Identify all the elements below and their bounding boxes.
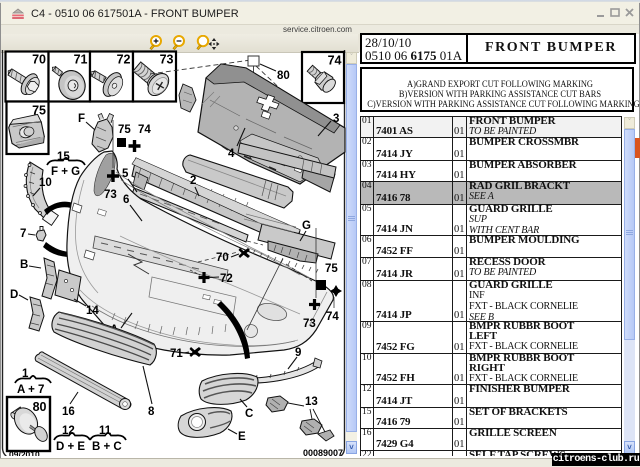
svg-text:16: 16: [62, 406, 75, 418]
svg-text:10: 10: [39, 177, 52, 189]
svg-text:3: 3: [333, 113, 339, 125]
svg-text:7: 7: [20, 228, 26, 240]
svg-text:E: E: [238, 431, 246, 443]
svg-text:B: B: [20, 259, 28, 271]
svg-text:8: 8: [148, 406, 155, 418]
svg-text:F: F: [78, 113, 85, 125]
svg-text:71: 71: [170, 348, 183, 360]
svg-text:72: 72: [220, 273, 233, 285]
svg-text:9: 9: [295, 347, 301, 359]
svg-text:74: 74: [138, 124, 151, 136]
svg-text:14: 14: [86, 305, 99, 317]
svg-text:75: 75: [325, 263, 338, 275]
svg-text:70: 70: [216, 252, 229, 264]
svg-text:73: 73: [104, 189, 117, 201]
svg-text:73: 73: [160, 53, 174, 67]
svg-text:A + 7: A + 7: [17, 384, 44, 396]
svg-text:F + G: F + G: [51, 166, 80, 178]
svg-text:C: C: [245, 408, 253, 420]
svg-text:00089007: 00089007: [303, 448, 343, 456]
svg-text:74: 74: [326, 311, 339, 323]
svg-text:71: 71: [74, 53, 88, 67]
svg-text:70: 70: [32, 53, 46, 67]
svg-text:80: 80: [277, 70, 290, 82]
svg-text:80: 80: [33, 400, 47, 414]
svg-text:4: 4: [228, 148, 235, 160]
svg-text:D: D: [10, 289, 18, 301]
svg-text:5: 5: [122, 168, 129, 180]
svg-text:B + C: B + C: [92, 441, 122, 453]
svg-text:G: G: [302, 220, 311, 232]
svg-text:72: 72: [117, 53, 131, 67]
svg-text:09/2010: 09/2010: [9, 450, 40, 457]
svg-text:6: 6: [123, 194, 129, 206]
svg-text:2: 2: [190, 175, 196, 187]
svg-text:73: 73: [303, 318, 316, 330]
svg-text:75: 75: [118, 124, 131, 136]
svg-text:13: 13: [305, 396, 318, 408]
svg-text:74: 74: [328, 54, 342, 68]
svg-text:D + E: D + E: [56, 441, 85, 453]
